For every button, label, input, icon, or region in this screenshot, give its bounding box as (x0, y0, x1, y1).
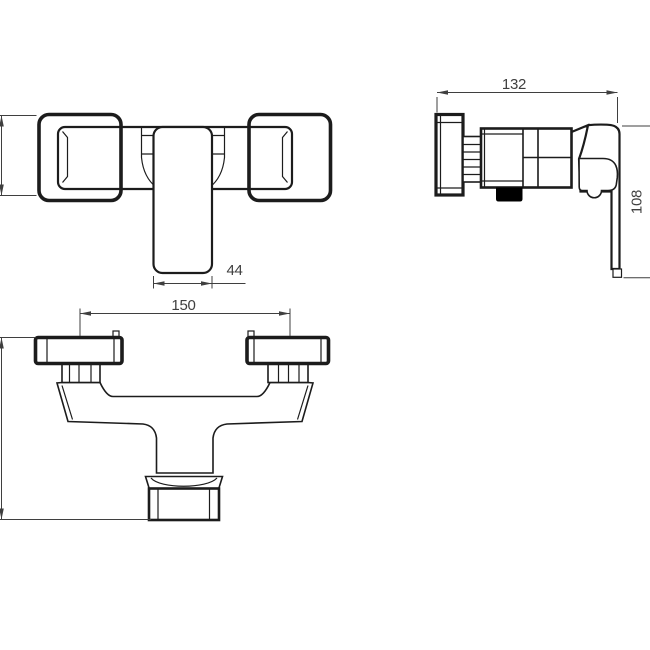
arrow-right (279, 311, 290, 316)
handle-front (154, 127, 213, 273)
dim-150-label: 150 (171, 297, 195, 314)
shower-mixer-drawing: 44 132 108 (0, 0, 650, 650)
arrow-left (80, 311, 91, 316)
technical-drawing-page: 44 132 108 (0, 0, 650, 650)
dimension-connection-spacing: 150 (80, 297, 290, 336)
top-view (36, 331, 329, 520)
dim-132-label: 132 (502, 76, 526, 93)
shower-outlet-port (496, 188, 523, 202)
dimension-front-height-cut (0, 116, 36, 196)
arrow-left (154, 281, 165, 286)
right-wall-flange-top (247, 338, 329, 364)
outlet-block-top (149, 489, 219, 521)
body-outline-top (57, 383, 313, 474)
arrow-right (201, 281, 212, 286)
arrow-right (607, 90, 618, 95)
extension-lines (0, 116, 37, 196)
dimension-height-cut: 108 (622, 126, 650, 278)
front-view (39, 115, 331, 274)
lever-tip-cap (613, 269, 622, 277)
arrow-left (437, 90, 448, 95)
left-wall-flange-top (36, 338, 123, 364)
dim-108-label: 108 (629, 190, 646, 214)
dim-44-label: 44 (226, 262, 242, 279)
side-view (436, 115, 622, 278)
